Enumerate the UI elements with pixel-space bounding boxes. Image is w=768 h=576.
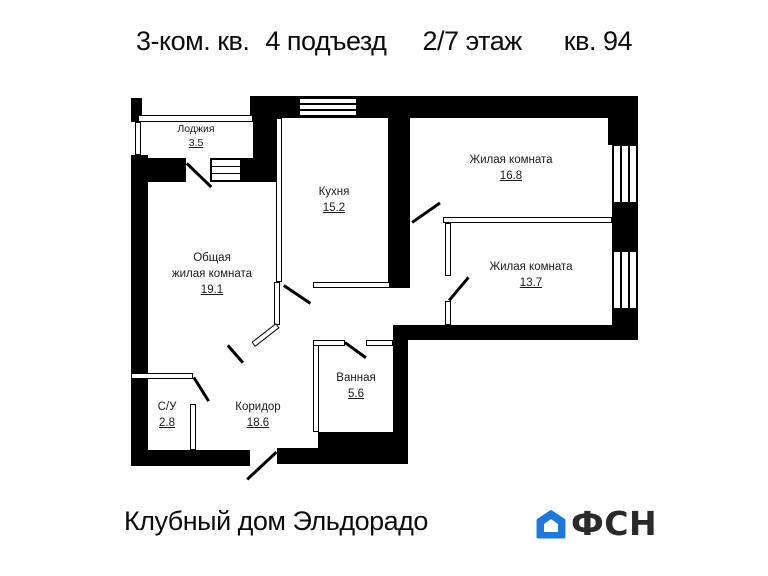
railing-loggia-top <box>138 115 253 122</box>
room-name-line1: Общая <box>142 250 282 266</box>
room-label-living2: Жилая комната 13.7 <box>451 259 611 291</box>
room-area: 13.7 <box>451 275 611 291</box>
wall-bathroom-top-right <box>366 340 393 346</box>
door-kitchen <box>283 284 311 304</box>
room-label-corridor: Коридор 18.6 <box>198 399 318 431</box>
room-area: 16.8 <box>431 168 591 184</box>
room-name: Коридор <box>198 399 318 415</box>
room-label-loggia: Лоджия 3.5 <box>146 122 246 150</box>
room-area: 18.6 <box>198 415 318 431</box>
door-loggia <box>186 162 212 187</box>
door-bathroom <box>344 341 367 358</box>
floor-plan-page: 3-ком. кв. 4 подъезд 2/7 этаж кв. 94 <box>0 0 768 576</box>
wall-bathroom-top-left <box>313 340 345 346</box>
wall-kitchen-bottom <box>313 282 390 288</box>
window-living2 <box>612 250 638 310</box>
window-living1 <box>612 144 638 204</box>
room-label-wc: С/У 2.8 <box>138 399 196 431</box>
room-name: С/У <box>138 399 196 415</box>
room-area: 2.8 <box>138 415 196 431</box>
wall-bottom-right <box>393 325 638 340</box>
wall-loggia-bottom-right <box>242 158 278 182</box>
wall-common-diagonal <box>251 323 279 347</box>
wall-bottom-step <box>277 448 408 464</box>
wall-loggia-bottom-left <box>148 158 186 182</box>
room-label-living1: Жилая комната 16.8 <box>431 152 591 184</box>
room-name-line2: жилая комната <box>142 266 282 282</box>
logo: ФСН <box>536 507 657 541</box>
room-area: 5.6 <box>306 386 406 402</box>
wall-kitchen-right <box>388 118 410 288</box>
room-name: Жилая комната <box>451 259 611 275</box>
door-common <box>227 344 244 363</box>
window-loggia <box>210 158 242 182</box>
wall-wc-top <box>131 373 193 379</box>
building-name: Клубный дом Эльдорадо <box>124 506 428 537</box>
window-kitchen <box>298 97 358 117</box>
room-label-common: Общая жилая комната 19.1 <box>142 250 282 298</box>
room-area: 15.2 <box>284 200 384 216</box>
room-name: Жилая комната <box>431 152 591 168</box>
room-area: 19.1 <box>142 282 282 298</box>
wall-bottom-left <box>131 450 250 466</box>
room-name: Ванная <box>306 370 406 386</box>
door-wc <box>193 377 210 402</box>
room-name: Лоджия <box>146 122 246 136</box>
wall-loggia-kitchen-block <box>253 118 278 158</box>
room-area: 3.5 <box>146 136 246 150</box>
wall-living1-bottom <box>443 217 612 223</box>
room-label-bathroom: Ванная 5.6 <box>306 370 406 402</box>
wall-bathroom-bottom <box>318 432 408 448</box>
floor-plan: Лоджия 3.5 Кухня 15.2 Жилая комната 16.8… <box>0 0 768 576</box>
wall-living2-left-lower <box>445 301 451 325</box>
door-living1 <box>411 202 440 224</box>
room-label-kitchen: Кухня 15.2 <box>284 184 384 216</box>
door-entrance <box>246 451 277 480</box>
room-name: Кухня <box>284 184 384 200</box>
logo-house-icon <box>536 509 566 539</box>
logo-text: ФСН <box>571 507 657 541</box>
railing-loggia-left <box>135 122 141 155</box>
